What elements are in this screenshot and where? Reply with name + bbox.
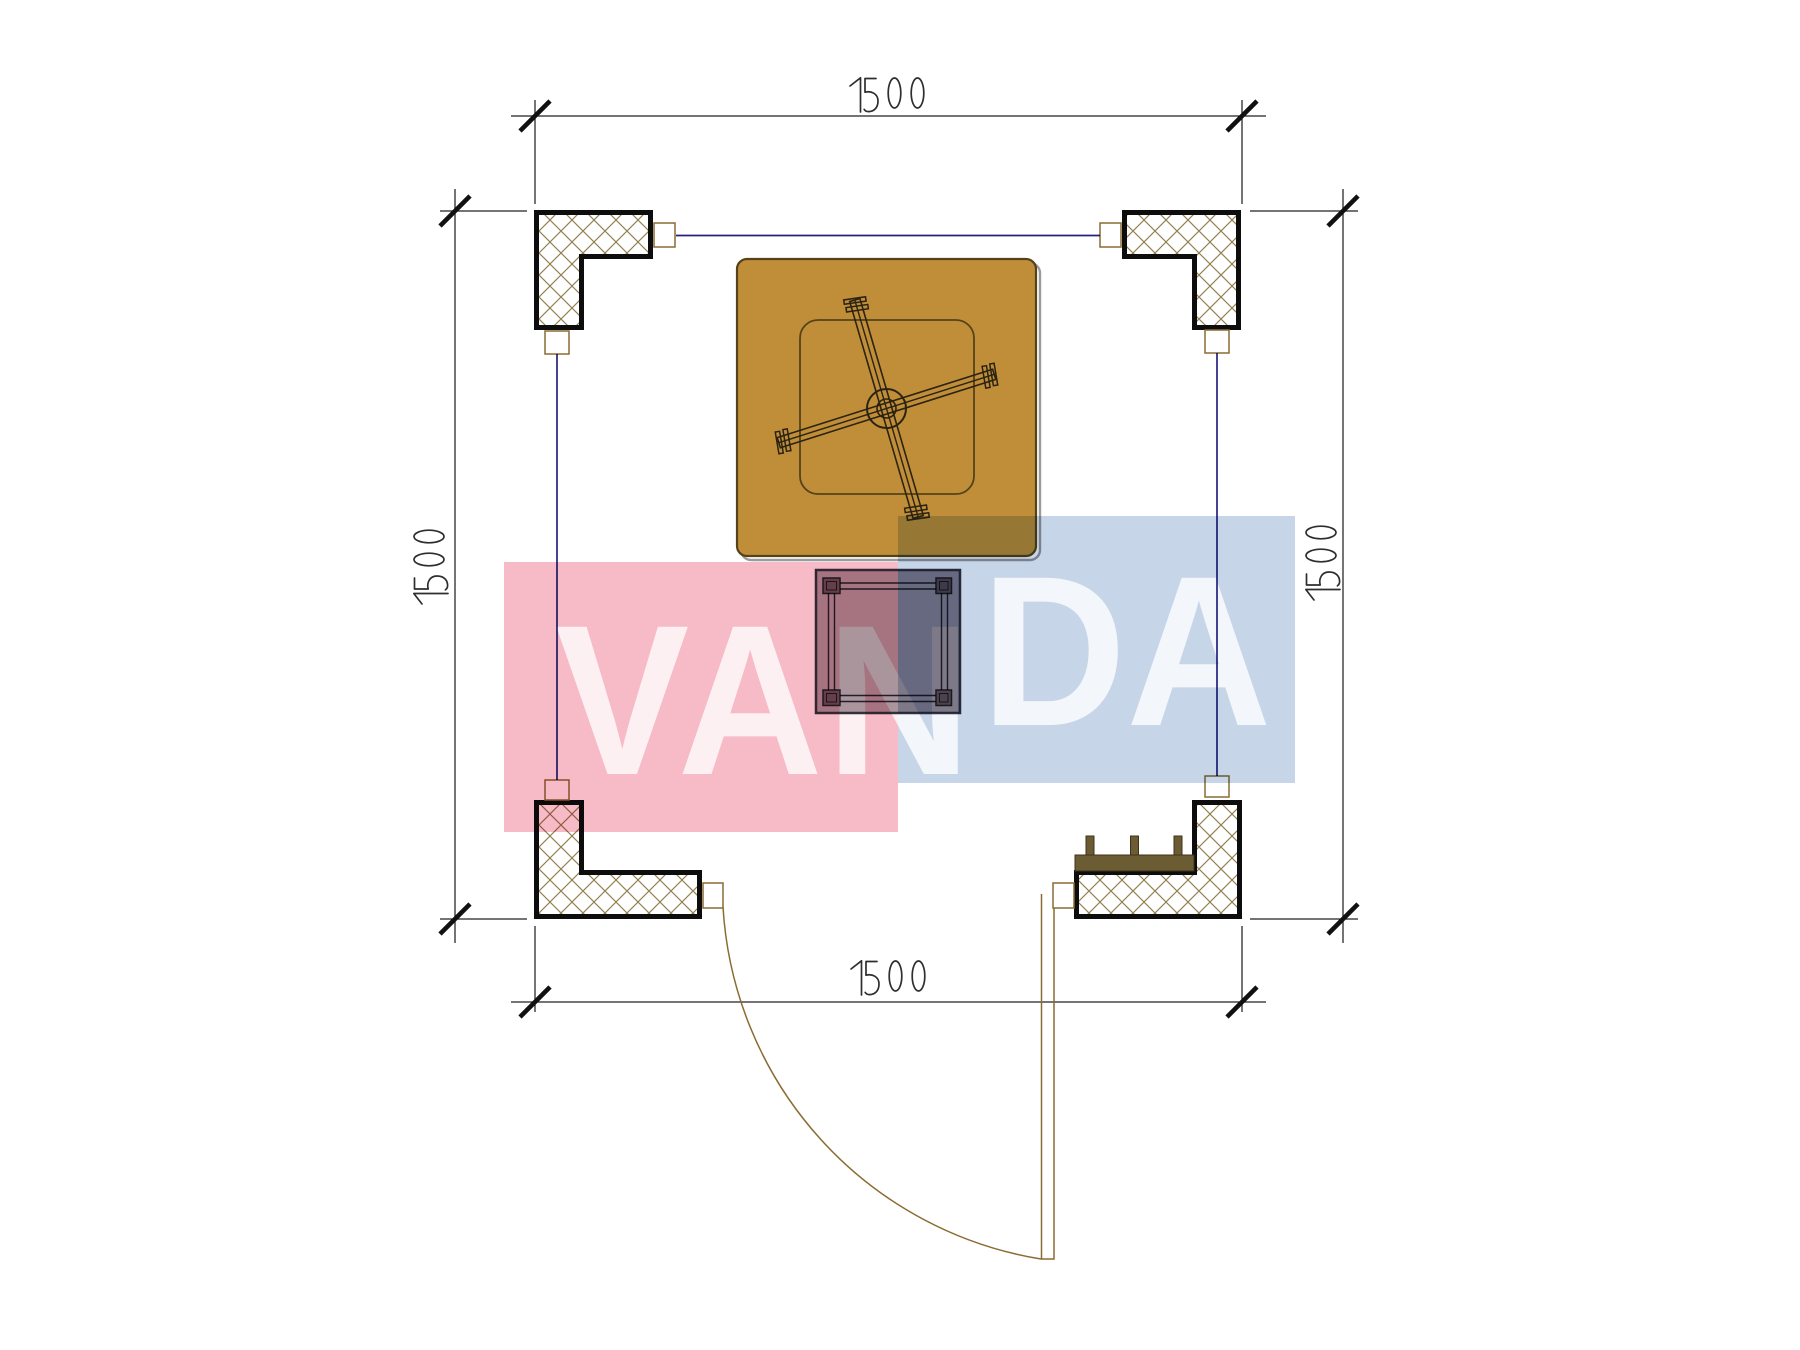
svg-text:DA: DA bbox=[981, 532, 1272, 771]
